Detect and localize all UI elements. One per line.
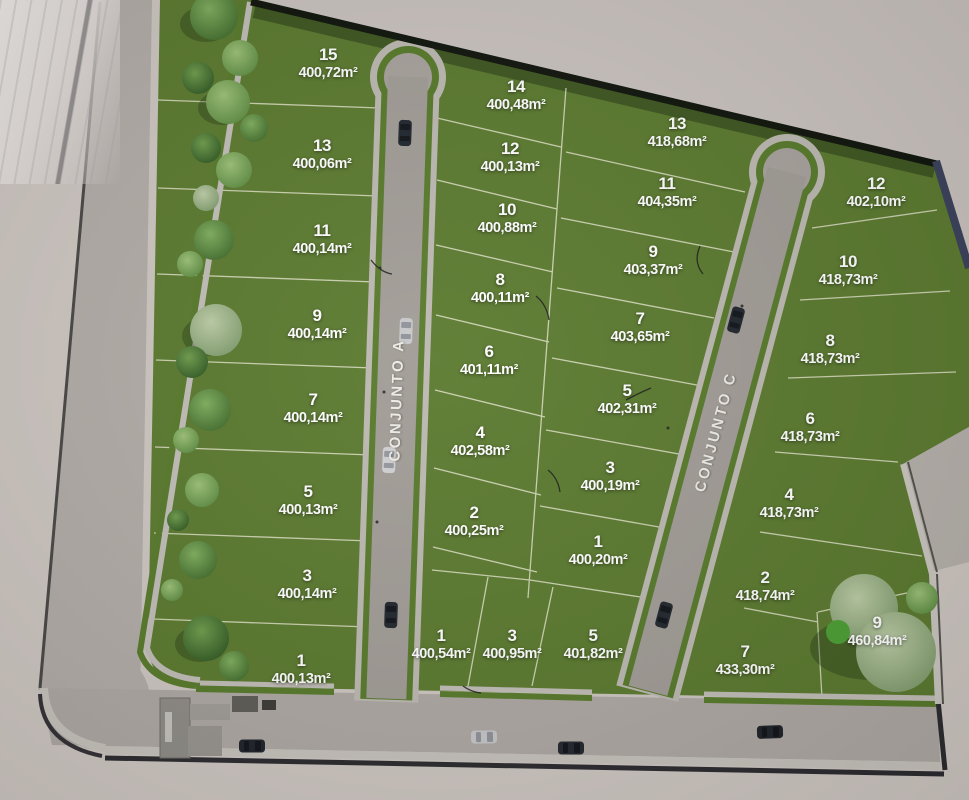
site-plan-render: CONJUNTO A CONJUNTO C 15400,72m²13400,06… [0,0,969,800]
car [239,740,265,753]
inset-photo-overlay [0,0,120,184]
car [384,602,398,628]
car [757,725,783,739]
car [382,447,396,473]
car [558,742,584,755]
car [399,318,413,344]
car [398,120,412,146]
site-plan-map [0,0,969,800]
car [471,730,497,743]
